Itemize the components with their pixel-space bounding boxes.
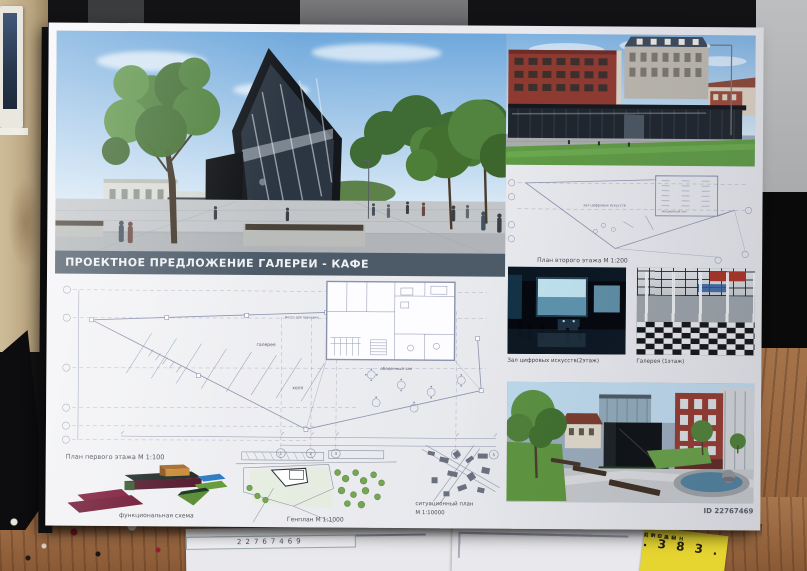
house-red-roof [561,413,603,448]
gallery-checkered-floor [636,322,754,356]
caption-gallery: Галерея (1этаж) [636,359,684,365]
wall-smudge [8,178,42,268]
poster-id-label: ID 22767469 [605,506,753,515]
room-label-digital-hall: зал цифровых искусств [583,203,625,207]
functional-scheme-label: функциональная схема [119,512,194,520]
second-floor-plan: зал цифровых искусств лекционный зал Пла… [505,169,755,267]
background-dark-area [756,192,807,357]
second-floor-plan-label: План второго этажа М 1:200 [537,257,628,265]
classical-building-mansard [624,37,708,100]
window-glass [3,13,17,109]
street-view-rendering [506,34,756,167]
red-brick-building [508,50,621,109]
interior-photo-gallery [636,268,755,356]
genplan: Генплан М 1:1000 [233,448,399,525]
photographed-presentation-scene: 22767469 ДИЗАЙН СРЕДЫ . 3 8 3 . [0,0,807,571]
title-banner: ПРОЕКТНОЕ ПРЕДЛОЖЕНИЕ ГАЛЕРЕИ - КАФЕ [55,251,505,277]
situation-plan-label-line1: ситуационный план [415,500,473,507]
situation-plan: ситуационный план М 1:10000 [411,443,504,518]
background-object [88,0,144,24]
glass-building-back [599,394,651,424]
window-sill [0,128,28,135]
functional-scheme: функциональная схема [59,459,254,522]
situation-plan-label-line2: М 1:10000 [415,510,445,516]
caption-digital-hall: Зал цифровых искусств(2этаж) [507,358,599,365]
interior-photo-digital-hall [507,267,626,355]
room-label-parking: место для парковки [285,315,319,319]
presentation-board: ПРОЕКТНОЕ ПРЕДЛОЖЕНИЕ ГАЛЕРЕИ - КАФЕ [45,23,763,531]
first-floor-plan: 1 2 3 4 5 место для парковки галерея хол… [56,278,502,466]
main-exterior-rendering [55,31,507,254]
glass-pavilion [508,104,746,142]
room-label-lecture-hall: лекционный зал [661,209,686,213]
genplan-label: Генплан М 1:1000 [287,516,344,523]
room-label-hall: холл [292,386,303,391]
room-label-dining: обеденный зал [380,366,412,371]
room-label-gallery: галерея [256,343,275,348]
courtyard-rendering [506,382,754,504]
